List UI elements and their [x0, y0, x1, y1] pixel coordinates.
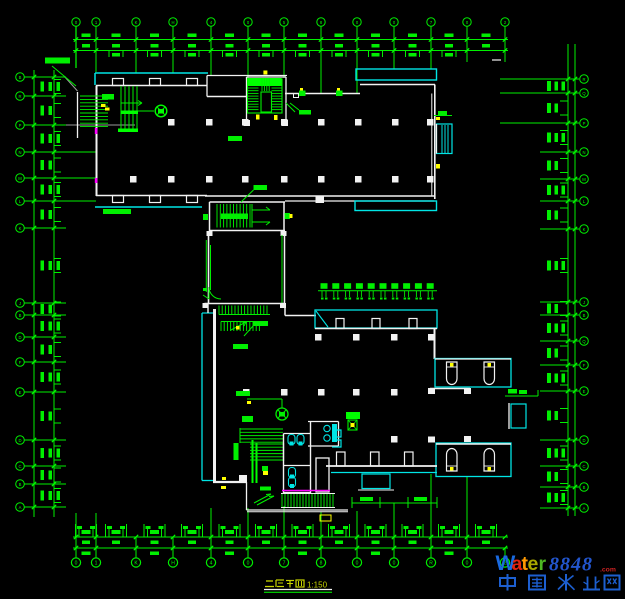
svg-text:8: 8 [320, 561, 323, 567]
svg-text:F: F [19, 360, 22, 365]
svg-text:B: B [19, 75, 22, 80]
svg-text:K: K [583, 227, 586, 232]
svg-text:.com: .com [600, 567, 616, 574]
svg-text:8848: 8848 [549, 554, 593, 576]
svg-text:B: B [19, 482, 22, 487]
svg-text:r: r [539, 553, 547, 575]
svg-text:K: K [135, 20, 138, 25]
svg-text:B: B [19, 313, 22, 318]
svg-text:P: P [19, 123, 22, 128]
svg-text:0: 0 [247, 561, 250, 567]
svg-text:M: M [582, 177, 586, 182]
svg-text:J: J [583, 300, 585, 305]
svg-text:A: A [583, 506, 586, 511]
svg-text:e: e [528, 553, 539, 575]
svg-text:7: 7 [283, 561, 286, 567]
svg-text:C: C [582, 464, 585, 469]
svg-text:1: 1 [95, 561, 98, 567]
svg-text:K: K [19, 226, 22, 231]
svg-text:0: 0 [466, 561, 469, 567]
svg-text:0: 0 [356, 561, 359, 567]
svg-text:A: A [19, 505, 22, 510]
svg-text:R: R [429, 561, 433, 567]
svg-text:J: J [19, 301, 21, 306]
svg-text:P: P [583, 121, 586, 126]
svg-text:B: B [583, 485, 586, 490]
svg-text:M: M [18, 176, 22, 181]
svg-text:0: 0 [393, 561, 396, 567]
svg-text:D: D [18, 335, 21, 340]
svg-text:E: E [19, 390, 22, 395]
svg-text:N: N [18, 150, 21, 155]
svg-text:D: D [18, 438, 21, 443]
svg-text:C: C [18, 464, 21, 469]
svg-text:1:150: 1:150 [307, 581, 328, 590]
svg-text:H: H [171, 20, 174, 25]
svg-text:F: F [583, 363, 586, 368]
svg-text:D: D [582, 438, 585, 443]
svg-text:E: E [583, 389, 586, 394]
svg-text:4: 4 [210, 561, 213, 567]
svg-text:R: R [582, 77, 585, 82]
svg-text:H: H [171, 561, 175, 567]
svg-text:R: R [18, 94, 21, 99]
svg-text:0: 0 [75, 561, 78, 567]
svg-text:B: B [583, 313, 586, 318]
svg-text:N: N [582, 150, 585, 155]
